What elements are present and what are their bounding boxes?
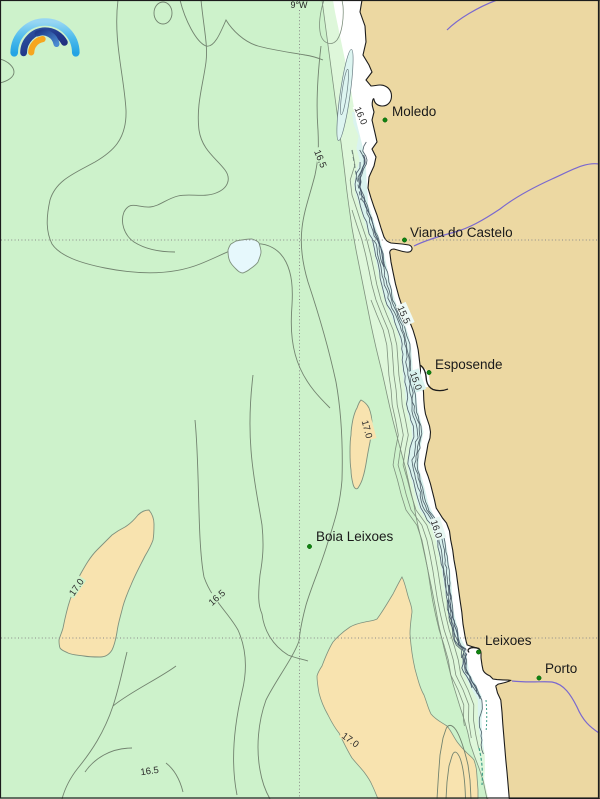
svg-text:Porto: Porto — [545, 661, 577, 676]
svg-text:Leixoes: Leixoes — [485, 633, 532, 648]
svg-text:9°W: 9°W — [290, 0, 308, 10]
svg-text:Moledo: Moledo — [392, 104, 436, 119]
svg-text:Boia Leixoes: Boia Leixoes — [316, 529, 394, 544]
svg-text:Esposende: Esposende — [435, 357, 503, 372]
svg-text:Viana do Castelo: Viana do Castelo — [410, 225, 513, 240]
